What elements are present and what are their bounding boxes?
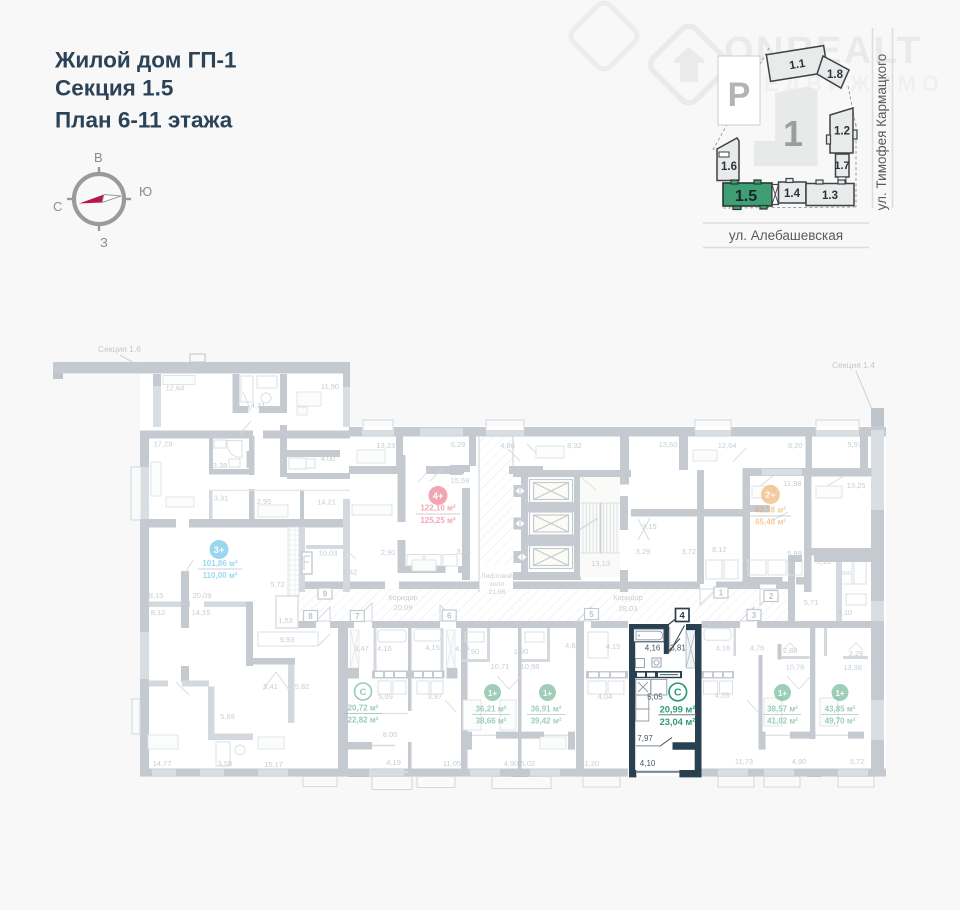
svg-text:110,00 м²: 110,00 м² xyxy=(203,571,238,580)
svg-text:11,05: 11,05 xyxy=(443,759,461,768)
svg-text:3,94: 3,94 xyxy=(456,547,471,556)
svg-text:3,72: 3,72 xyxy=(681,547,696,556)
svg-text:ул. Алебашевская: ул. Алебашевская xyxy=(729,228,843,243)
svg-text:4,04: 4,04 xyxy=(598,692,613,701)
svg-text:3: 3 xyxy=(752,611,757,620)
svg-text:2,42: 2,42 xyxy=(343,568,358,577)
svg-text:4+: 4+ xyxy=(433,491,444,502)
svg-text:7,97: 7,97 xyxy=(637,734,653,743)
svg-text:125,25 м²: 125,25 м² xyxy=(420,516,456,525)
svg-text:39,42 м²: 39,42 м² xyxy=(531,717,562,726)
svg-text:43,85 м²: 43,85 м² xyxy=(825,705,856,714)
svg-text:2,90: 2,90 xyxy=(381,548,396,557)
svg-text:5,72: 5,72 xyxy=(270,580,285,589)
svg-text:4,10: 4,10 xyxy=(640,759,656,768)
svg-text:5,97: 5,97 xyxy=(847,440,862,449)
svg-text:Секция 1.4: Секция 1.4 xyxy=(832,360,875,370)
svg-text:5,82: 5,82 xyxy=(295,682,310,691)
svg-text:101,86 м²: 101,86 м² xyxy=(202,559,238,568)
svg-text:36,91 м²: 36,91 м² xyxy=(531,705,562,714)
svg-text:14,77: 14,77 xyxy=(153,759,172,768)
svg-text:3,31: 3,31 xyxy=(214,494,229,503)
svg-text:5,41: 5,41 xyxy=(263,682,278,691)
svg-text:6,29: 6,29 xyxy=(451,440,466,449)
svg-text:холл: холл xyxy=(490,581,505,588)
svg-text:5,69: 5,69 xyxy=(220,712,235,721)
svg-text:Ю: Ю xyxy=(139,184,152,199)
svg-text:49,70 м²: 49,70 м² xyxy=(825,717,856,726)
svg-text:8: 8 xyxy=(308,612,313,621)
svg-text:5,13: 5,13 xyxy=(816,557,831,566)
svg-text:11,90: 11,90 xyxy=(321,382,339,391)
svg-text:4,90: 4,90 xyxy=(792,757,807,766)
svg-text:12,64: 12,64 xyxy=(166,384,185,393)
svg-text:ул. Тимофея Кармацкого: ул. Тимофея Кармацкого xyxy=(874,54,889,211)
svg-text:17,29: 17,29 xyxy=(154,440,173,449)
svg-text:1+: 1+ xyxy=(835,689,844,698)
svg-text:З: З xyxy=(100,235,108,250)
svg-text:20,09: 20,09 xyxy=(193,591,212,600)
svg-text:4,16: 4,16 xyxy=(716,644,731,653)
svg-text:1.2: 1.2 xyxy=(834,126,850,138)
svg-text:4,76: 4,76 xyxy=(750,644,765,653)
svg-text:Секция 1.5: Секция 1.5 xyxy=(55,76,173,101)
svg-text:4,16: 4,16 xyxy=(377,644,392,653)
svg-text:1,90: 1,90 xyxy=(514,647,529,656)
svg-text:3,97: 3,97 xyxy=(428,692,443,701)
svg-text:7: 7 xyxy=(355,612,360,621)
svg-text:15,59: 15,59 xyxy=(451,476,470,485)
svg-text:2+: 2+ xyxy=(765,490,776,501)
svg-text:122,10 м²: 122,10 м² xyxy=(420,504,456,513)
svg-text:1: 1 xyxy=(783,113,803,154)
svg-text:36,21 м²: 36,21 м² xyxy=(476,705,507,714)
svg-text:5,02: 5,02 xyxy=(520,759,535,768)
svg-text:План 6-11 этажа: План 6-11 этажа xyxy=(55,108,233,133)
svg-text:С: С xyxy=(674,687,682,699)
svg-text:4,16: 4,16 xyxy=(645,644,661,653)
svg-text:6: 6 xyxy=(447,612,452,621)
svg-text:20,72 м²: 20,72 м² xyxy=(348,704,379,713)
svg-text:4,15: 4,15 xyxy=(606,642,621,651)
svg-text:2,28: 2,28 xyxy=(849,649,864,658)
svg-text:5: 5 xyxy=(589,610,594,619)
svg-text:4,86: 4,86 xyxy=(500,441,515,450)
svg-text:14,21: 14,21 xyxy=(317,498,336,507)
svg-text:1+: 1+ xyxy=(543,689,552,698)
svg-text:1,90: 1,90 xyxy=(464,647,479,656)
svg-text:1.8: 1.8 xyxy=(827,69,844,81)
svg-text:4,00: 4,00 xyxy=(321,454,336,463)
svg-text:Коридор: Коридор xyxy=(613,593,643,602)
svg-text:3,29: 3,29 xyxy=(636,547,651,556)
svg-text:Жилой дом ГП-1: Жилой дом ГП-1 xyxy=(54,48,237,73)
svg-text:Коридор: Коридор xyxy=(388,593,418,602)
svg-text:9,93: 9,93 xyxy=(280,635,295,644)
svg-text:3,15: 3,15 xyxy=(642,522,657,531)
svg-text:Секция 1.6: Секция 1.6 xyxy=(98,344,141,354)
svg-text:5,88: 5,88 xyxy=(787,549,802,558)
svg-text:6,20: 6,20 xyxy=(788,441,803,450)
svg-text:Р: Р xyxy=(728,76,751,114)
svg-text:13,38: 13,38 xyxy=(843,663,862,672)
svg-text:11,98: 11,98 xyxy=(783,479,801,488)
svg-text:1: 1 xyxy=(719,589,724,598)
svg-text:2: 2 xyxy=(769,592,774,601)
svg-text:13,60: 13,60 xyxy=(659,440,678,449)
svg-text:4,15: 4,15 xyxy=(425,643,440,652)
svg-text:1.4: 1.4 xyxy=(784,188,801,200)
svg-text:8,12: 8,12 xyxy=(151,608,166,617)
svg-text:3,58: 3,58 xyxy=(218,759,233,768)
svg-text:8,12: 8,12 xyxy=(712,545,727,554)
svg-text:15,17: 15,17 xyxy=(264,760,283,769)
svg-text:28,03: 28,03 xyxy=(619,604,638,613)
svg-text:5,72: 5,72 xyxy=(850,757,865,766)
svg-text:20,99 м²: 20,99 м² xyxy=(660,704,696,714)
svg-text:10,76: 10,76 xyxy=(786,663,805,672)
svg-text:11,73: 11,73 xyxy=(735,757,753,766)
svg-text:38,57 м²: 38,57 м² xyxy=(767,705,798,714)
svg-text:11,20: 11,20 xyxy=(581,759,599,768)
svg-text:41,02 м²: 41,02 м² xyxy=(767,717,798,726)
svg-text:5,71: 5,71 xyxy=(804,598,819,607)
svg-text:8,32: 8,32 xyxy=(567,441,582,450)
svg-text:4,90: 4,90 xyxy=(504,759,519,768)
svg-text:1+: 1+ xyxy=(488,689,497,698)
svg-text:65,48 м²: 65,48 м² xyxy=(755,518,786,527)
svg-text:13,23: 13,23 xyxy=(376,441,395,450)
svg-text:10,71: 10,71 xyxy=(491,662,510,671)
svg-text:4,28: 4,28 xyxy=(715,691,730,700)
svg-text:4: 4 xyxy=(680,611,686,622)
svg-text:1.6: 1.6 xyxy=(721,161,737,173)
svg-text:В: В xyxy=(94,150,103,165)
svg-text:4,31: 4,31 xyxy=(251,401,266,410)
svg-text:1+: 1+ xyxy=(778,689,787,698)
svg-text:1.3: 1.3 xyxy=(822,190,838,202)
svg-text:22,82 м²: 22,82 м² xyxy=(348,716,379,725)
svg-text:4,64: 4,64 xyxy=(565,641,580,650)
svg-text:4,19: 4,19 xyxy=(386,758,401,767)
svg-text:23,04 м²: 23,04 м² xyxy=(660,717,696,727)
svg-text:10,98: 10,98 xyxy=(521,662,540,671)
svg-text:С: С xyxy=(360,687,367,698)
svg-text:5,09: 5,09 xyxy=(378,692,393,701)
svg-text:3+: 3+ xyxy=(214,545,225,556)
svg-text:62,38 м²: 62,38 м² xyxy=(755,506,786,515)
svg-text:8,15: 8,15 xyxy=(149,591,164,600)
svg-text:10,03: 10,03 xyxy=(319,549,338,558)
svg-text:12,64: 12,64 xyxy=(718,441,737,450)
svg-text:21,96: 21,96 xyxy=(488,589,505,596)
svg-text:38,66 м²: 38,66 м² xyxy=(476,717,507,726)
svg-text:3,38: 3,38 xyxy=(213,461,228,470)
svg-text:8,00: 8,00 xyxy=(383,730,398,739)
svg-text:1.5: 1.5 xyxy=(735,188,757,205)
svg-text:1.7: 1.7 xyxy=(834,160,849,172)
svg-text:4,10: 4,10 xyxy=(838,608,853,617)
svg-text:13,25: 13,25 xyxy=(847,481,866,490)
svg-text:20,09: 20,09 xyxy=(394,603,413,612)
svg-text:9: 9 xyxy=(323,590,328,599)
svg-text:3,81: 3,81 xyxy=(670,644,686,653)
svg-text:13,13: 13,13 xyxy=(591,559,610,568)
svg-text:5,05: 5,05 xyxy=(647,693,663,702)
svg-text:3,47: 3,47 xyxy=(354,644,369,653)
svg-text:2,88: 2,88 xyxy=(783,646,798,655)
svg-text:2,95: 2,95 xyxy=(257,497,272,506)
svg-text:1.1: 1.1 xyxy=(788,58,806,72)
svg-text:1,53: 1,53 xyxy=(278,616,293,625)
svg-text:Лифтовой: Лифтовой xyxy=(481,572,513,580)
svg-text:14,15: 14,15 xyxy=(192,608,211,617)
svg-text:С: С xyxy=(53,199,62,214)
